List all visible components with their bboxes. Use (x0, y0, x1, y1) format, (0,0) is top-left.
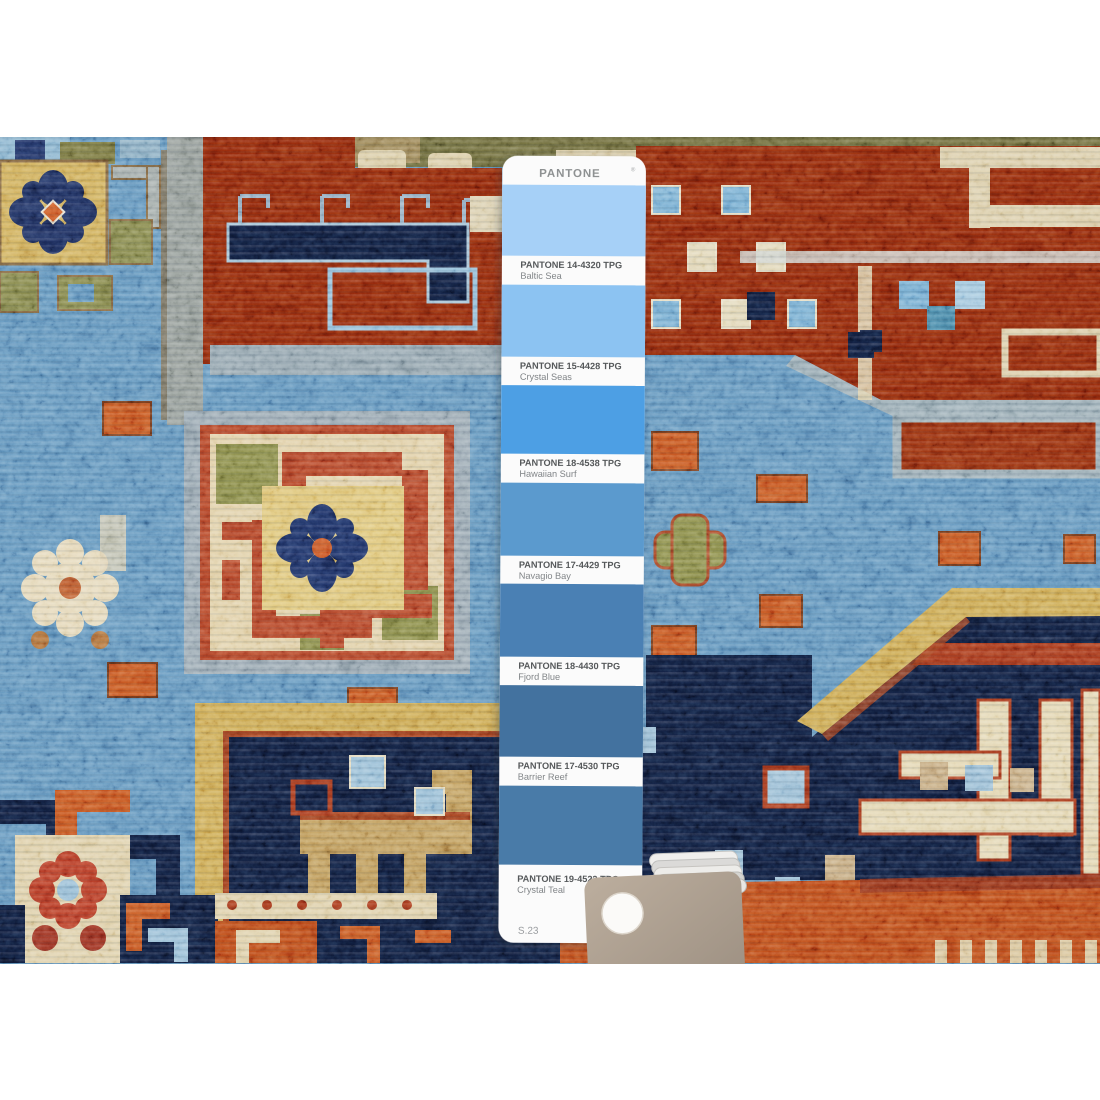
svg-text:Barrier Reef: Barrier Reef (518, 772, 568, 782)
svg-text:Baltic Sea: Baltic Sea (520, 271, 562, 281)
svg-text:PANTONE 15-4428 TPG: PANTONE 15-4428 TPG (520, 361, 622, 372)
svg-text:Navagio Bay: Navagio Bay (519, 571, 572, 581)
svg-text:Hawaiian Surf: Hawaiian Surf (519, 469, 577, 479)
svg-text:®: ® (631, 166, 636, 173)
svg-text:Fjord Blue: Fjord Blue (518, 672, 560, 682)
svg-text:PANTONE 17-4530 TPG: PANTONE 17-4530 TPG (518, 761, 620, 772)
svg-text:Crystal Seas: Crystal Seas (520, 372, 573, 382)
svg-text:PANTONE 17-4429 TPG: PANTONE 17-4429 TPG (519, 560, 621, 571)
svg-text:PANTONE 18-4538 TPG: PANTONE 18-4538 TPG (519, 458, 621, 469)
svg-text:PANTONE 14-4320 TPG: PANTONE 14-4320 TPG (520, 260, 622, 271)
svg-text:S.23: S.23 (518, 926, 539, 937)
svg-text:Crystal Teal: Crystal Teal (517, 885, 565, 895)
svg-text:PANTONE 18-4430 TPG: PANTONE 18-4430 TPG (518, 661, 620, 672)
svg-text:PANTONE: PANTONE (539, 168, 601, 180)
